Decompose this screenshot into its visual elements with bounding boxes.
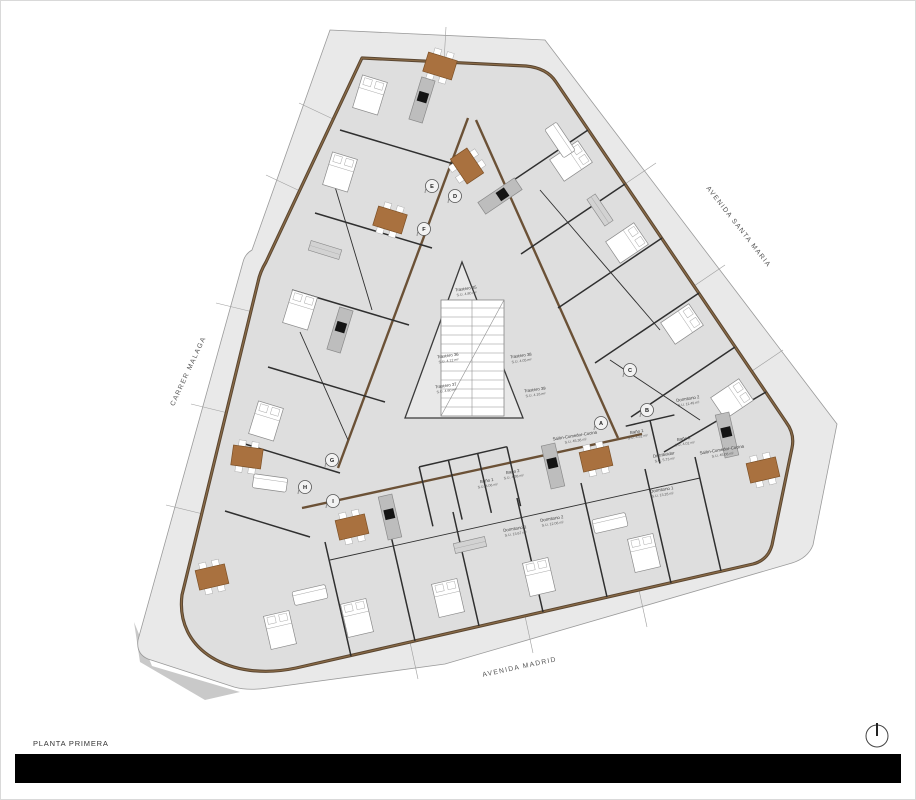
street-label-avenida-madrid: AVENIDA MADRID bbox=[482, 656, 558, 679]
street-label-avenida-santa-maria: AVENIDA SANTA MARIA bbox=[704, 185, 772, 269]
sheet-title: PLANTA PRIMERA bbox=[33, 739, 109, 748]
entrance-d: D bbox=[449, 190, 462, 203]
entrance-letter: C bbox=[628, 368, 632, 374]
entrance-letter: H bbox=[303, 485, 307, 491]
entrance-a: A bbox=[595, 417, 608, 430]
floor-plan-drawing: A B C D E F G H I Trastero 35S.U. 4.80 m… bbox=[0, 0, 916, 800]
entrance-letter: E bbox=[430, 184, 434, 190]
street-label-carrer-malaga: CARRER MALAGA bbox=[169, 336, 207, 408]
footer-redacted-bar bbox=[15, 754, 901, 783]
entrance-i: I bbox=[327, 495, 340, 508]
entrance-letter: B bbox=[645, 408, 649, 414]
entrance-letter: G bbox=[330, 458, 334, 464]
entrance-letter: F bbox=[422, 227, 426, 233]
entrance-f: F bbox=[418, 223, 431, 236]
north-indicator-icon bbox=[866, 723, 888, 747]
entrance-b: B bbox=[641, 404, 654, 417]
floor-plan-page: A B C D E F G H I Trastero 35S.U. 4.80 m… bbox=[0, 0, 916, 800]
entrance-h: H bbox=[299, 481, 312, 494]
entrance-letter: D bbox=[453, 194, 457, 200]
entrance-g: G bbox=[326, 454, 339, 467]
entrance-c: C bbox=[624, 364, 637, 377]
entrance-letter: A bbox=[599, 421, 603, 427]
entrance-e: E bbox=[426, 180, 439, 193]
